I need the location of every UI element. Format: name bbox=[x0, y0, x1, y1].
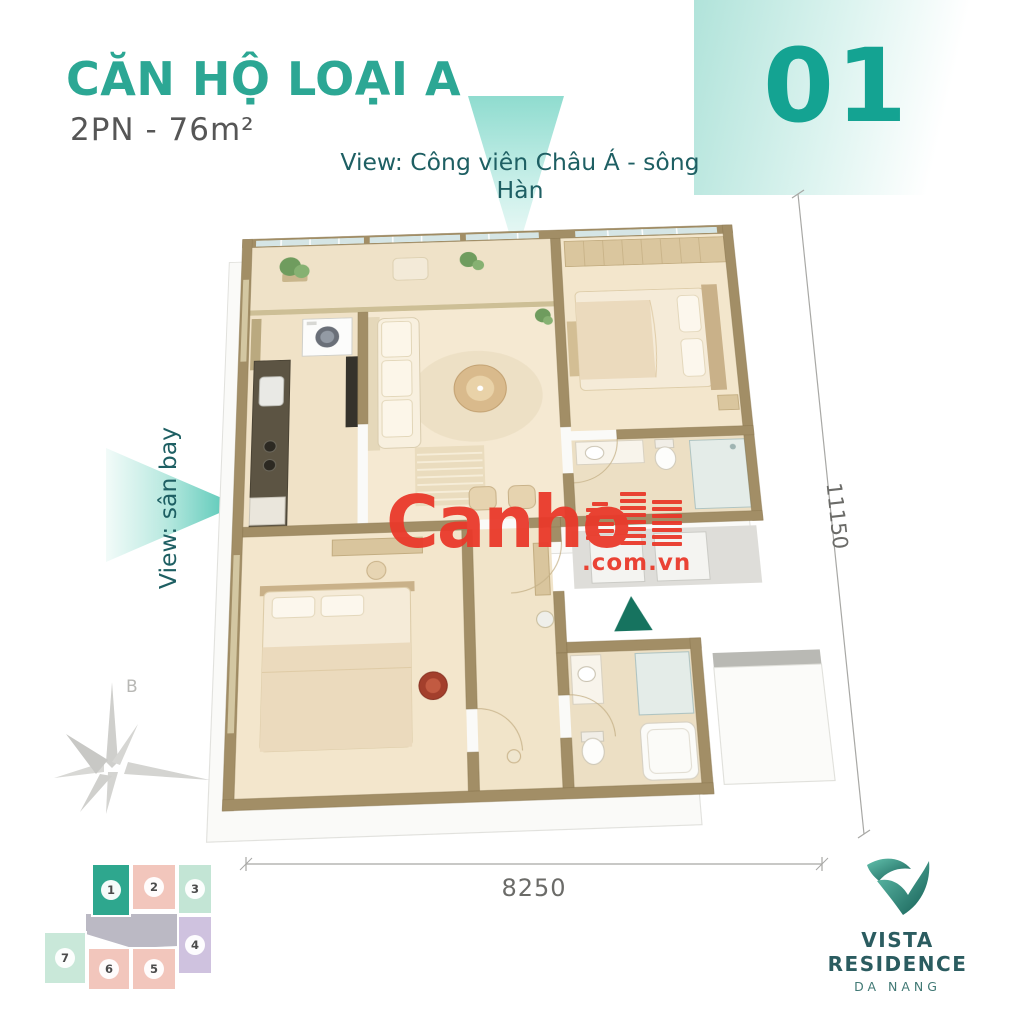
dimension-horizontal-label: 8250 bbox=[501, 874, 566, 902]
shower bbox=[635, 652, 694, 715]
bed bbox=[575, 284, 728, 394]
washing-machine bbox=[302, 318, 352, 356]
fridge bbox=[249, 497, 285, 525]
compass-rose-icon: B bbox=[40, 662, 220, 822]
key-plan-unit-number: 2 bbox=[150, 880, 158, 894]
key-plan: 1234567 bbox=[36, 856, 226, 1001]
key-plan-corridor bbox=[86, 914, 178, 948]
page-title: CĂN HỘ LOẠI A bbox=[66, 52, 461, 106]
balcony-chair bbox=[393, 257, 428, 280]
key-plan-unit-number: 7 bbox=[61, 951, 69, 965]
dimension-vertical: 11150 bbox=[786, 186, 916, 856]
shower bbox=[689, 439, 751, 509]
brand-location: DA NANG bbox=[790, 979, 1005, 994]
key-plan-unit-number: 5 bbox=[150, 962, 158, 976]
sofa bbox=[368, 316, 421, 451]
brand-name: VISTA RESIDENCE bbox=[790, 928, 1005, 976]
key-plan-unit-number: 1 bbox=[107, 883, 115, 897]
compass-north-label: B bbox=[126, 677, 138, 697]
watermark: Canho .com.vn bbox=[386, 486, 696, 581]
watermark-suffix: .com.vn bbox=[582, 550, 691, 576]
lamp bbox=[507, 749, 521, 763]
dimension-vertical-label: 11150 bbox=[822, 481, 853, 550]
buildings-icon bbox=[586, 490, 682, 552]
unit-number-badge: 01 bbox=[763, 36, 909, 138]
chair bbox=[367, 561, 386, 580]
page-subtitle: 2PN - 76m² bbox=[70, 112, 255, 148]
wardrobe bbox=[564, 237, 726, 267]
entry-marker bbox=[612, 595, 653, 631]
mirror bbox=[536, 611, 554, 628]
v-bird-icon bbox=[861, 850, 935, 922]
brand-logo: VISTA RESIDENCE DA NANG bbox=[790, 850, 1005, 994]
poster-page: CĂN HỘ LOẠI A 2PN - 76m² 01 View: Công v… bbox=[0, 0, 1024, 1024]
key-plan-unit-number: 6 bbox=[105, 962, 113, 976]
view-label-top: View: Công viên Châu Á - sông Hàn bbox=[320, 148, 720, 204]
dimension-horizontal: 8250 bbox=[232, 848, 852, 908]
key-plan-unit-number: 4 bbox=[191, 938, 199, 952]
bed bbox=[255, 581, 416, 752]
nightstand bbox=[718, 395, 740, 410]
tv-panel bbox=[346, 356, 358, 427]
key-plan-unit-number: 3 bbox=[191, 882, 199, 896]
